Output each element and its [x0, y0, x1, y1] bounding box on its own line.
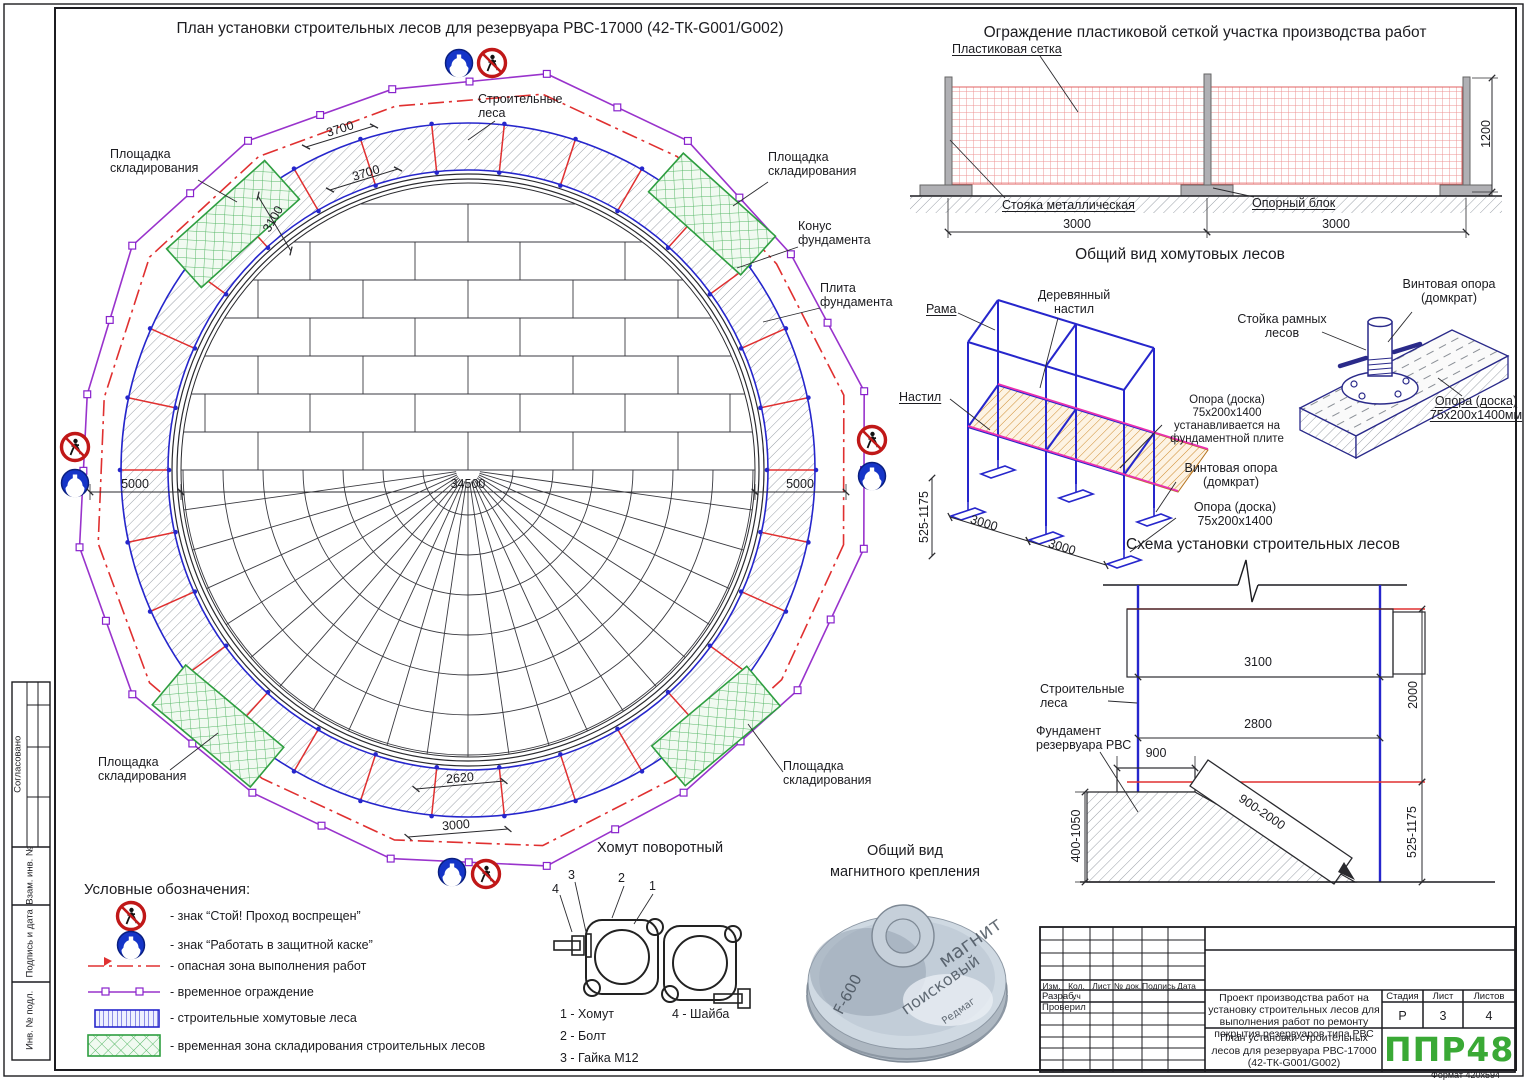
- jack-detail-board-label: Опора (доска) 75х200х1400мм: [1420, 394, 1527, 422]
- scaffold-frame-label: Рама: [926, 302, 972, 316]
- dim-offset-left: 5000: [105, 477, 165, 491]
- legend-symbols: [88, 903, 160, 1057]
- legend-fence-line: [88, 988, 160, 995]
- clamp-callout-2: 2: [618, 871, 632, 885]
- scaffold-dim-height: 525-1175: [917, 482, 931, 552]
- tb-sheets-value: 4: [1463, 1009, 1515, 1023]
- scheme-scaffolding-label: Строительные леса: [1040, 682, 1128, 710]
- legend-item-text: - временное ограждение: [170, 985, 540, 999]
- legend-item-text: - временная зона складирования строитель…: [170, 1039, 550, 1053]
- tb-sheets-header: Листов: [1463, 992, 1515, 1003]
- plan-slab-label: Плита фундамента: [820, 281, 900, 309]
- stamp-podpis-data: Подпись и дата: [26, 903, 37, 983]
- legend-item-text: - опасная зона выполнения работ: [170, 959, 540, 973]
- legend-storage-rect: [88, 1035, 160, 1056]
- clamp-callout-3: 3: [568, 868, 582, 882]
- magnet-title-1: Общий вид: [830, 843, 980, 859]
- clamp-callout-4: 4: [552, 882, 566, 896]
- scaffold-deck-label: Деревянный настил: [1022, 288, 1126, 316]
- plan-storage-label-ne: Площадка складирования: [768, 150, 866, 178]
- scaffold-deck2-label: Настил: [899, 390, 951, 404]
- clamp-part-2: 2 - Болт: [560, 1029, 680, 1043]
- tb-header-dok: № док.: [1113, 982, 1142, 992]
- legend-item-text: - знак “Работать в защитной каске”: [170, 938, 540, 952]
- dim-offset-right: 5000: [770, 477, 830, 491]
- plan-scaffolding-label: Строительные леса: [478, 92, 566, 120]
- scheme-dim-height: 2000: [1406, 665, 1420, 725]
- scaffold-view-title: Общий вид хомутовых лесов: [1030, 246, 1330, 263]
- scheme-dim-bottom-height: 525-1175: [1405, 797, 1419, 867]
- scaffold-support-note: Опора (доска) 75х200х1400 устанавливаетс…: [1164, 394, 1290, 446]
- format-note: Формат 420х594: [1400, 1070, 1500, 1080]
- jack-detail-jack-label: Винтовая опора (домкрат): [1396, 277, 1502, 305]
- tb-stage-value: Р: [1382, 1009, 1423, 1023]
- plan-title: План установки строительных лесов для ре…: [150, 20, 810, 37]
- clamp-drawing: [554, 882, 750, 1008]
- drawing-sheet: План установки строительных лесов для ре…: [0, 0, 1527, 1080]
- jack-detail-stand-label: Стойка рамных лесов: [1226, 312, 1338, 340]
- clamp-part-1: 1 - Хомут: [560, 1007, 680, 1021]
- hardhat-sign-bottom: [439, 859, 466, 887]
- dim-diameter: 34500: [438, 477, 498, 491]
- stamp-soglasovano: Согласовано: [14, 724, 25, 804]
- plan-storage-label-nw: Площадка складирования: [110, 147, 208, 175]
- legend-title: Условные обозначения:: [84, 882, 344, 899]
- fence-title: Ограждение пластиковой сеткой участка пр…: [905, 24, 1505, 41]
- tb-stage-header: Стадия: [1382, 992, 1423, 1003]
- hardhat-sign-left: [62, 470, 89, 498]
- scheme-dim-step: 900: [1136, 746, 1176, 760]
- no-entry-sign-bottom: [473, 861, 500, 888]
- magnet-title-2: магнитного крепления: [795, 864, 1015, 880]
- scheme-title: Схема установки строительных лесов: [1108, 536, 1418, 553]
- fence-block-label: Опорный блок: [1252, 196, 1347, 210]
- clamp-title: Хомут поворотный: [580, 840, 740, 856]
- company-logo: ППР48: [1384, 1032, 1514, 1069]
- no-entry-sign-right: [859, 427, 886, 454]
- plan-storage-label-se: Площадка складирования: [783, 759, 881, 787]
- legend-hardhat-icon: [118, 932, 145, 960]
- fence-dim-height: 1200: [1479, 104, 1493, 164]
- legend-danger-flag: [104, 957, 112, 966]
- clamp-callout-1: 1: [649, 879, 663, 893]
- scheme-dim-mid: 2800: [1228, 717, 1288, 731]
- plan-storage-label-sw: Площадка складирования: [98, 755, 196, 783]
- tb-header-list: Лист: [1090, 982, 1113, 992]
- clamp-part-4: 4 - Шайба: [672, 1007, 782, 1021]
- legend-item-text: - знак “Стой! Проход воспрещен”: [170, 909, 540, 923]
- scheme-dim-found-height: 400-1050: [1069, 801, 1083, 871]
- hardhat-sign-top: [446, 50, 473, 78]
- fence-dim-right: 3000: [1306, 217, 1366, 231]
- scheme-foundation-label: Фундамент резервуара РВС: [1036, 724, 1142, 752]
- tb-sheet-value: 3: [1423, 1009, 1463, 1023]
- tb-sheet-header: Лист: [1423, 992, 1463, 1003]
- hardhat-sign-right: [859, 463, 886, 491]
- tb-row-proveril: Проверил: [1042, 1003, 1102, 1014]
- legend-item-text: - строительные хомутовые леса: [170, 1011, 540, 1025]
- scaffold-jack-label: Винтовая опора (домкрат): [1178, 461, 1284, 489]
- tb-header-podpis: Подпись: [1142, 982, 1168, 992]
- legend-no-entry-icon: [118, 903, 145, 930]
- tb-doc-title: План установки строительных лесов для ре…: [1208, 1032, 1380, 1070]
- scheme-dim-top: 3100: [1228, 655, 1288, 669]
- fence-mesh-label: Пластиковая сетка: [952, 42, 1082, 56]
- fence-post-label: Стояка металлическая: [1002, 198, 1152, 212]
- scaffold-support-label: Опора (доска) 75х200х1400: [1178, 500, 1292, 528]
- no-entry-sign-top: [479, 50, 506, 77]
- fence-dim-left: 3000: [1047, 217, 1107, 231]
- legend-scaffold-rect: [95, 1010, 159, 1027]
- plan-cone-label: Конус фундамента: [798, 219, 878, 247]
- fence-detail-drawing: [910, 56, 1502, 213]
- clamp-part-3: 3 - Гайка М12: [560, 1051, 690, 1065]
- tb-header-data: Дата: [1168, 982, 1205, 992]
- no-entry-sign-left: [62, 434, 89, 461]
- stamp-inv-podl: Инв. № подл.: [26, 980, 37, 1060]
